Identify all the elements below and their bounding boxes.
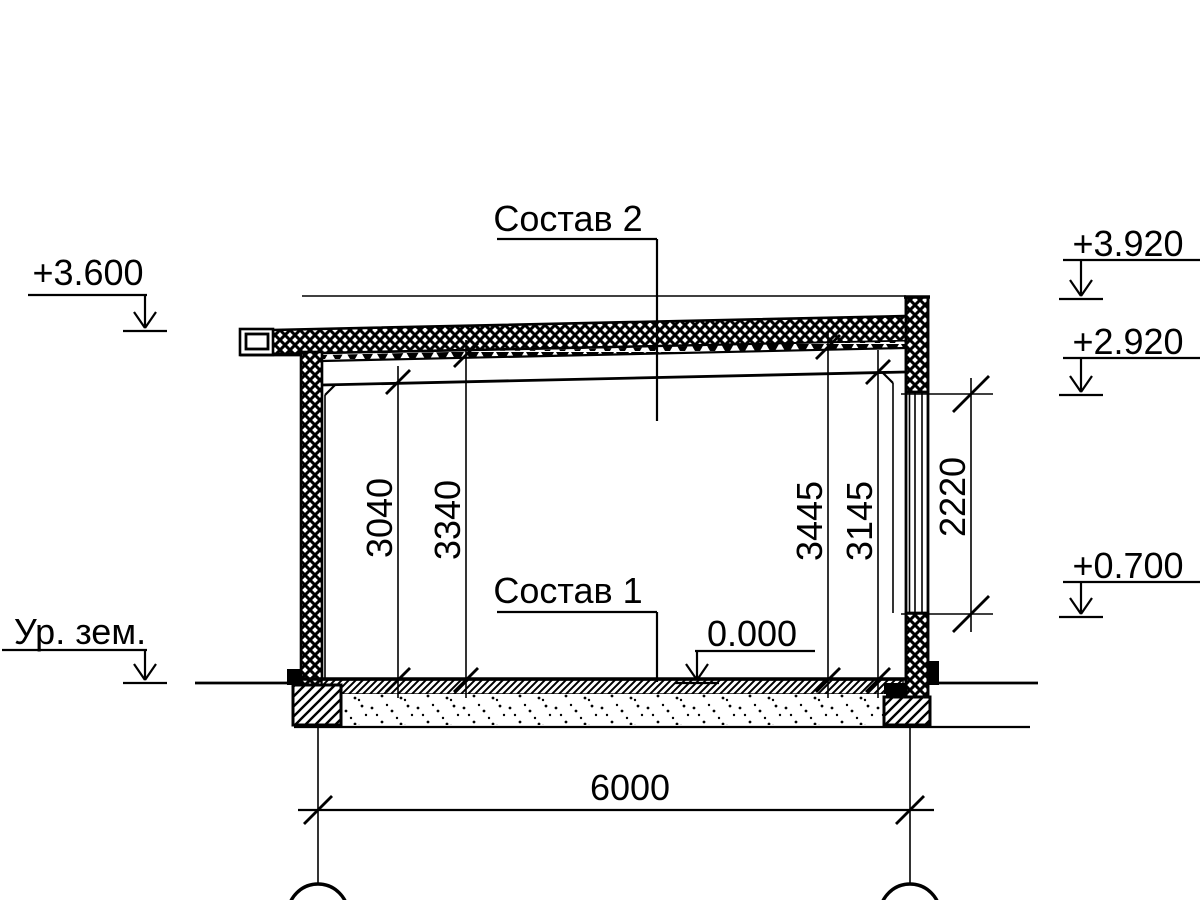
drawing-canvas: 3040 3340 3445 3145 <box>0 0 1200 900</box>
elevation-arrow <box>28 295 167 331</box>
left-wall <box>301 352 322 685</box>
right-wall <box>904 297 930 700</box>
elevation-text-2920: +2.920 <box>1072 321 1183 362</box>
dim-text-3145: 3145 <box>839 481 880 561</box>
building-section-drawing: 3040 3340 3445 3145 <box>0 0 1200 900</box>
left-ceiling-chamfer <box>325 385 335 395</box>
callout-text-floor: Состав 1 <box>493 570 642 611</box>
dim-3145: 3145 <box>839 350 890 698</box>
elevation-arrow <box>2 650 167 683</box>
callouts: Состав 2 Состав 1 <box>493 198 657 682</box>
dim-3040: 3040 <box>359 366 410 698</box>
floor-slab-hatch-band <box>322 680 903 694</box>
elevation-text-3600: +3.600 <box>32 252 143 293</box>
left-wall-panel <box>301 352 322 685</box>
beam-bottom-line <box>322 372 905 385</box>
callout-floor-composition: Состав 1 <box>493 570 657 682</box>
elevation-arrow <box>1059 582 1200 617</box>
callout-roof-composition: Состав 2 <box>493 198 657 421</box>
elevation-mark-0700: +0.700 <box>1059 545 1200 617</box>
left-foundation-block <box>293 685 341 725</box>
elevation-mark-3600: +3.600 <box>28 252 167 331</box>
elevation-mark-3920: +3.920 <box>1059 223 1200 299</box>
elevation-mark-zero: 0.000 <box>675 613 815 683</box>
elevation-mark-ground: Ур. зем. <box>2 611 167 683</box>
elevation-text-zero: 0.000 <box>707 613 797 654</box>
dim-text-6000: 6000 <box>590 767 670 808</box>
window <box>906 392 928 613</box>
elevation-arrow <box>1059 358 1200 395</box>
dimensions: 3040 3340 3445 3145 <box>298 331 993 824</box>
axis-bubble-right <box>880 884 940 900</box>
callout-text-roof: Состав 2 <box>493 198 642 239</box>
right-wall-lower-panel <box>906 613 928 700</box>
right-wall-upper-panel <box>906 297 928 392</box>
axis-bubble-left <box>288 884 348 900</box>
dim-6000: 6000 <box>298 767 934 824</box>
eave-fascia-inner <box>246 334 268 349</box>
elevation-marks: +3.600 Ур. зем. 0.000 +3.920 +2.920 +0.7… <box>2 223 1200 683</box>
elevation-text-ground: Ур. зем. <box>14 611 146 652</box>
elevation-mark-2920: +2.920 <box>1059 321 1200 395</box>
elevation-arrow <box>1059 260 1200 299</box>
right-ceiling-chamfer <box>883 373 893 383</box>
sand-base-stipple-band <box>340 694 886 725</box>
dim-text-3040: 3040 <box>359 478 400 558</box>
right-plinth-detail <box>927 661 939 685</box>
elevation-text-0700: +0.700 <box>1072 545 1183 586</box>
elevation-text-3920: +3.920 <box>1072 223 1183 264</box>
callout-leader <box>497 612 657 682</box>
dim-text-2220: 2220 <box>932 457 973 537</box>
right-foundation-block <box>884 697 930 725</box>
dim-text-3445: 3445 <box>789 481 830 561</box>
dim-3340: 3340 <box>427 340 478 698</box>
roof-assembly <box>240 296 908 361</box>
axes <box>288 725 940 900</box>
dim-text-3340: 3340 <box>427 480 468 560</box>
